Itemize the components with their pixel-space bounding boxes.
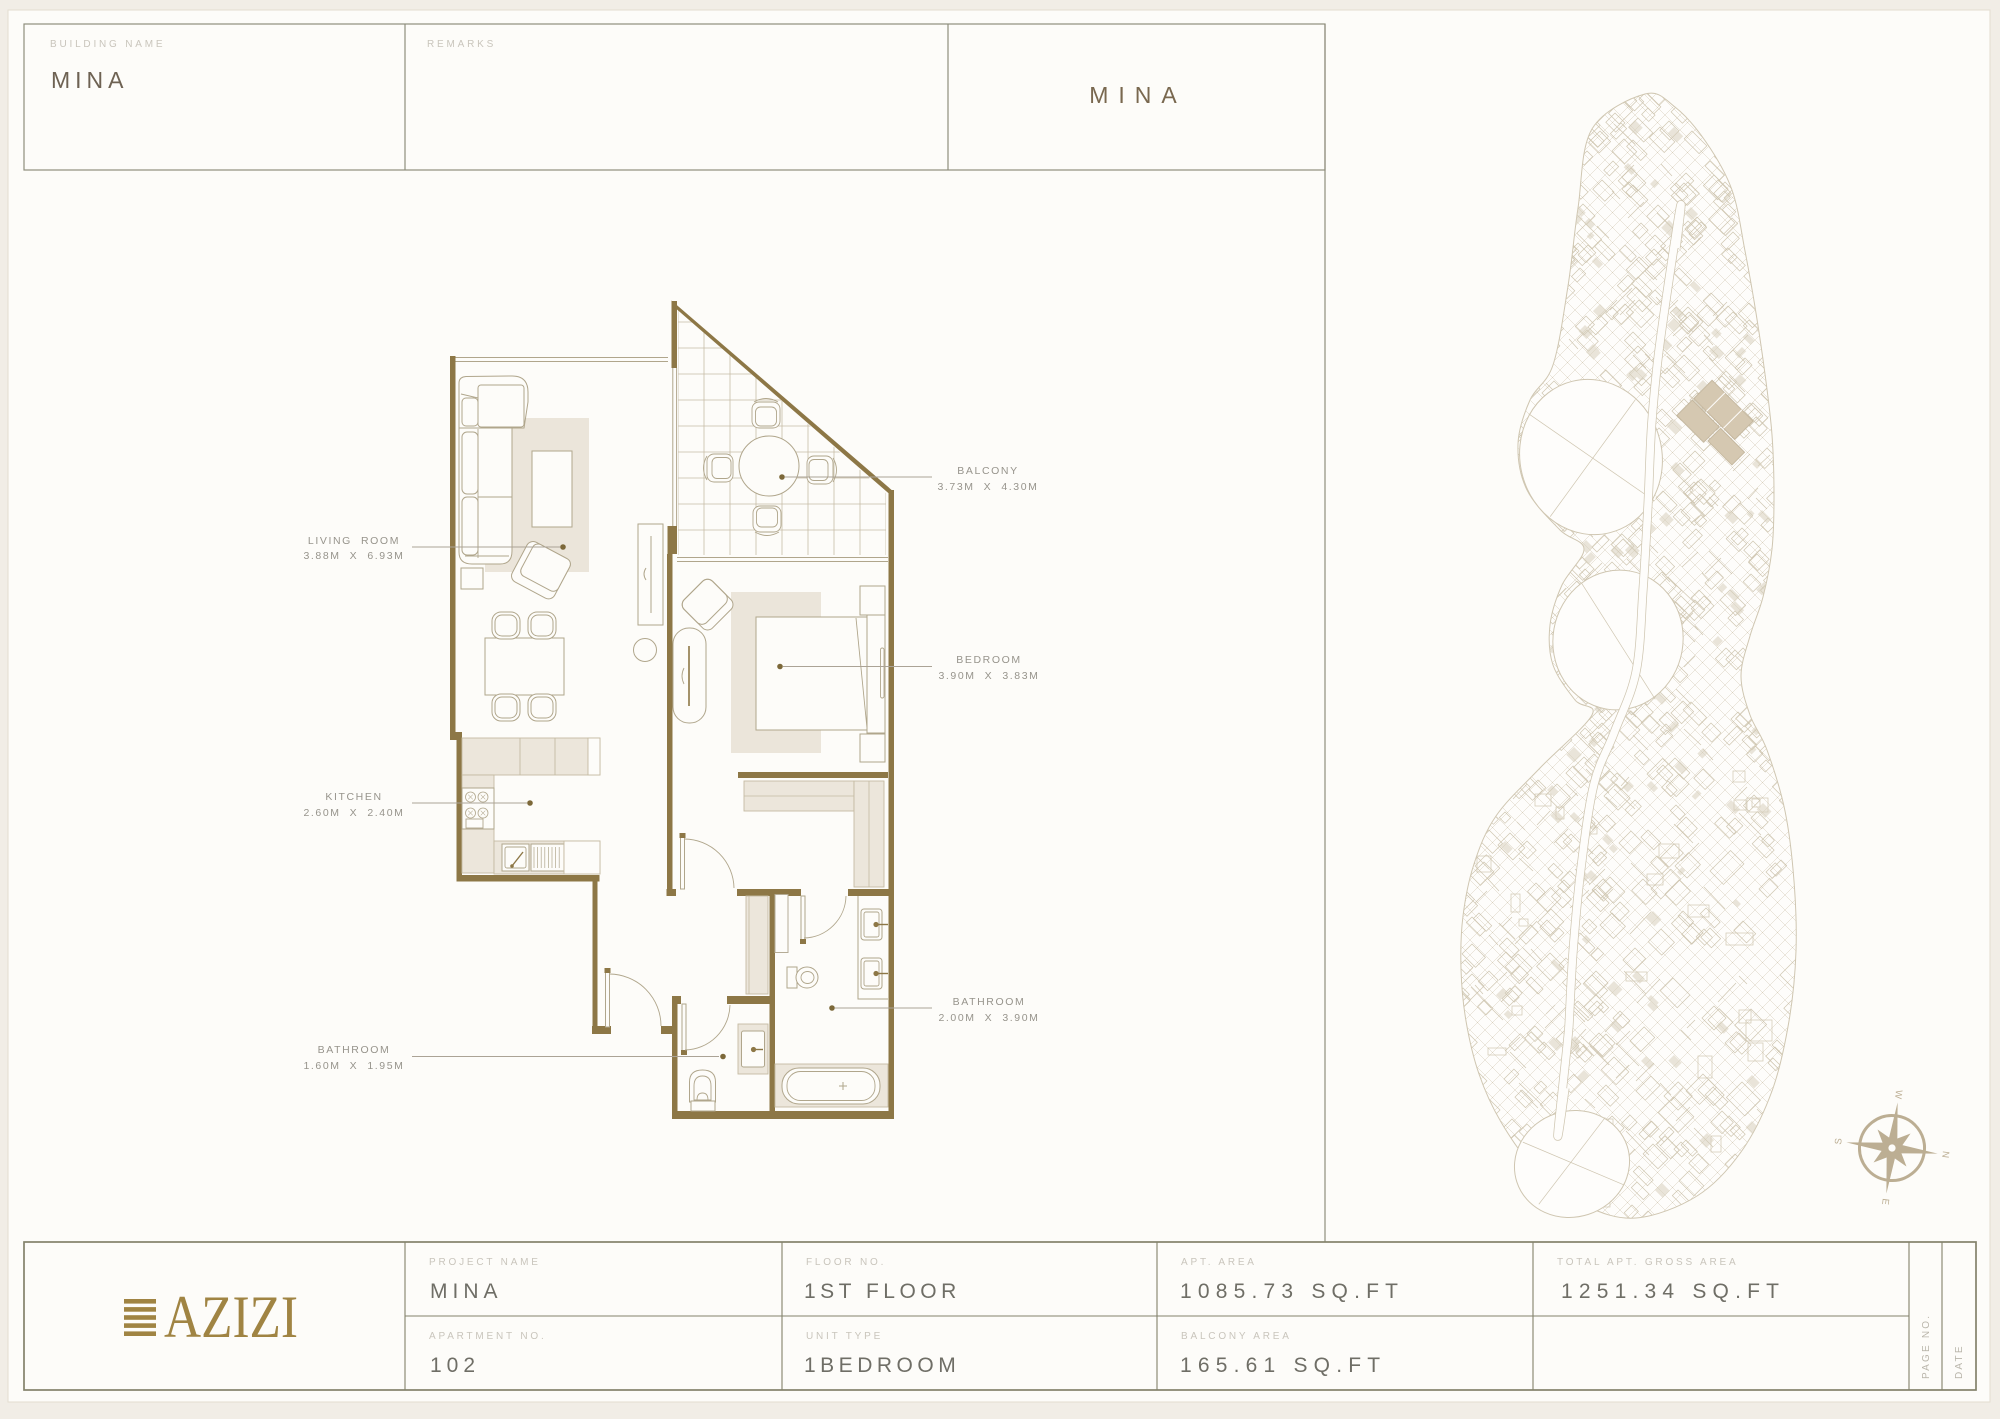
svg-text:PROJECT NAME: PROJECT NAME [429, 1257, 541, 1268]
svg-text:BALCONY AREA: BALCONY AREA [1181, 1331, 1292, 1342]
svg-text:102: 102 [430, 1354, 480, 1377]
svg-text:1085.73 SQ.FT: 1085.73 SQ.FT [1180, 1280, 1404, 1303]
svg-text:KITCHEN: KITCHEN [325, 791, 382, 803]
svg-text:3.90M X 3.83M: 3.90M X 3.83M [938, 670, 1039, 682]
svg-text:BALCONY: BALCONY [957, 465, 1018, 477]
svg-text:BATHROOM: BATHROOM [318, 1044, 391, 1056]
svg-text:S: S [1833, 1138, 1845, 1146]
svg-text:MINA: MINA [51, 67, 129, 93]
svg-text:W: W [1892, 1089, 1904, 1099]
svg-text:AZIZI: AZIZI [164, 1284, 298, 1350]
svg-text:1ST FLOOR: 1ST FLOOR [804, 1280, 961, 1303]
svg-text:TOTAL APT. GROSS AREA: TOTAL APT. GROSS AREA [1557, 1257, 1738, 1268]
svg-text:3.73M X 4.30M: 3.73M X 4.30M [937, 481, 1038, 493]
svg-text:UNIT TYPE: UNIT TYPE [806, 1331, 883, 1342]
svg-text:BEDROOM: BEDROOM [956, 654, 1021, 666]
svg-text:2.60M X 2.40M: 2.60M X 2.40M [303, 807, 404, 819]
svg-text:1BEDROOM: 1BEDROOM [804, 1354, 960, 1377]
svg-text:APARTMENT NO.: APARTMENT NO. [429, 1331, 547, 1342]
svg-text:DATE: DATE [1954, 1344, 1965, 1379]
svg-text:MINA: MINA [430, 1280, 503, 1303]
svg-text:LIVING ROOM: LIVING ROOM [308, 535, 400, 547]
svg-text:PAGE NO.: PAGE NO. [1921, 1314, 1932, 1379]
svg-text:2.00M X 3.90M: 2.00M X 3.90M [938, 1012, 1039, 1024]
svg-text:FLOOR NO.: FLOOR NO. [806, 1257, 886, 1268]
svg-text:MINA: MINA [1089, 82, 1187, 108]
svg-text:REMARKS: REMARKS [427, 39, 496, 50]
svg-text:BATHROOM: BATHROOM [953, 996, 1026, 1008]
svg-text:E: E [1879, 1198, 1891, 1206]
svg-text:APT. AREA: APT. AREA [1181, 1257, 1257, 1268]
svg-text:165.61 SQ.FT: 165.61 SQ.FT [1180, 1354, 1386, 1377]
svg-text:3.88M X 6.93M: 3.88M X 6.93M [303, 550, 404, 562]
svg-text:1251.34 SQ.FT: 1251.34 SQ.FT [1561, 1280, 1785, 1303]
svg-text:1.60M X 1.95M: 1.60M X 1.95M [303, 1060, 404, 1072]
svg-text:BUILDING NAME: BUILDING NAME [50, 39, 165, 50]
